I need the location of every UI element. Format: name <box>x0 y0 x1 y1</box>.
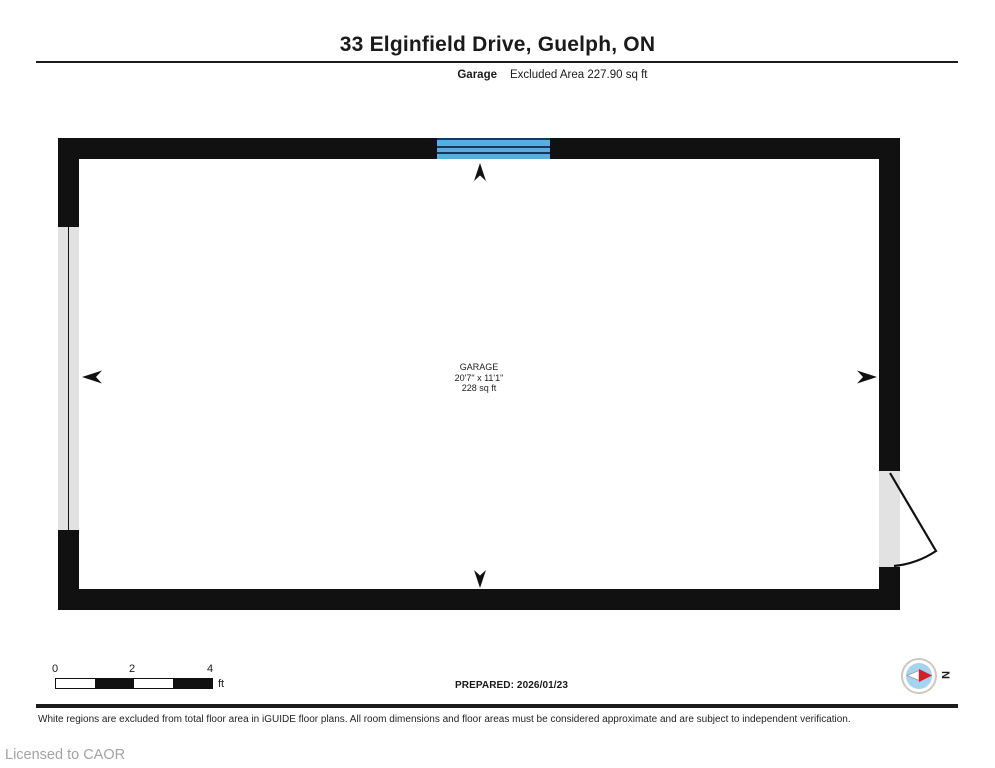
floorplan-drawing: GARAGE 20'7" x 11'1" 228 sq ft <box>58 138 900 610</box>
floor-name-label: Garage <box>457 69 497 81</box>
compass-north-label: N <box>939 671 951 679</box>
door-swing <box>890 473 936 566</box>
header-divider <box>36 61 958 63</box>
room-dimensions: 20'7" x 11'1" <box>58 373 900 384</box>
excluded-area-note: Excluded Area 227.90 sq ft <box>510 69 647 81</box>
scale-unit-label: ft <box>218 678 224 690</box>
compass-icon <box>901 658 937 694</box>
license-text: Licensed to CAOR <box>5 747 125 763</box>
arrow-up-icon <box>474 163 486 181</box>
footer-divider <box>36 704 958 708</box>
page-title: 33 Elginfield Drive, Guelph, ON <box>0 33 995 57</box>
compass-needle <box>903 660 934 691</box>
room-area: 228 sq ft <box>58 383 900 394</box>
scale-tick-4: 4 <box>204 663 216 675</box>
arrow-down-icon <box>474 570 486 588</box>
scale-bar <box>55 678 213 689</box>
floorplan-page: 33 Elginfield Drive, Guelph, ON Garage E… <box>0 0 995 768</box>
disclaimer-text: White regions are excluded from total fl… <box>38 714 965 725</box>
prepared-date: PREPARED: 2026/01/23 <box>455 680 568 691</box>
scale-tick-0: 0 <box>49 663 61 675</box>
room-name: GARAGE <box>58 362 900 373</box>
room-label: GARAGE 20'7" x 11'1" 228 sq ft <box>58 362 900 394</box>
scale-tick-2: 2 <box>126 663 138 675</box>
